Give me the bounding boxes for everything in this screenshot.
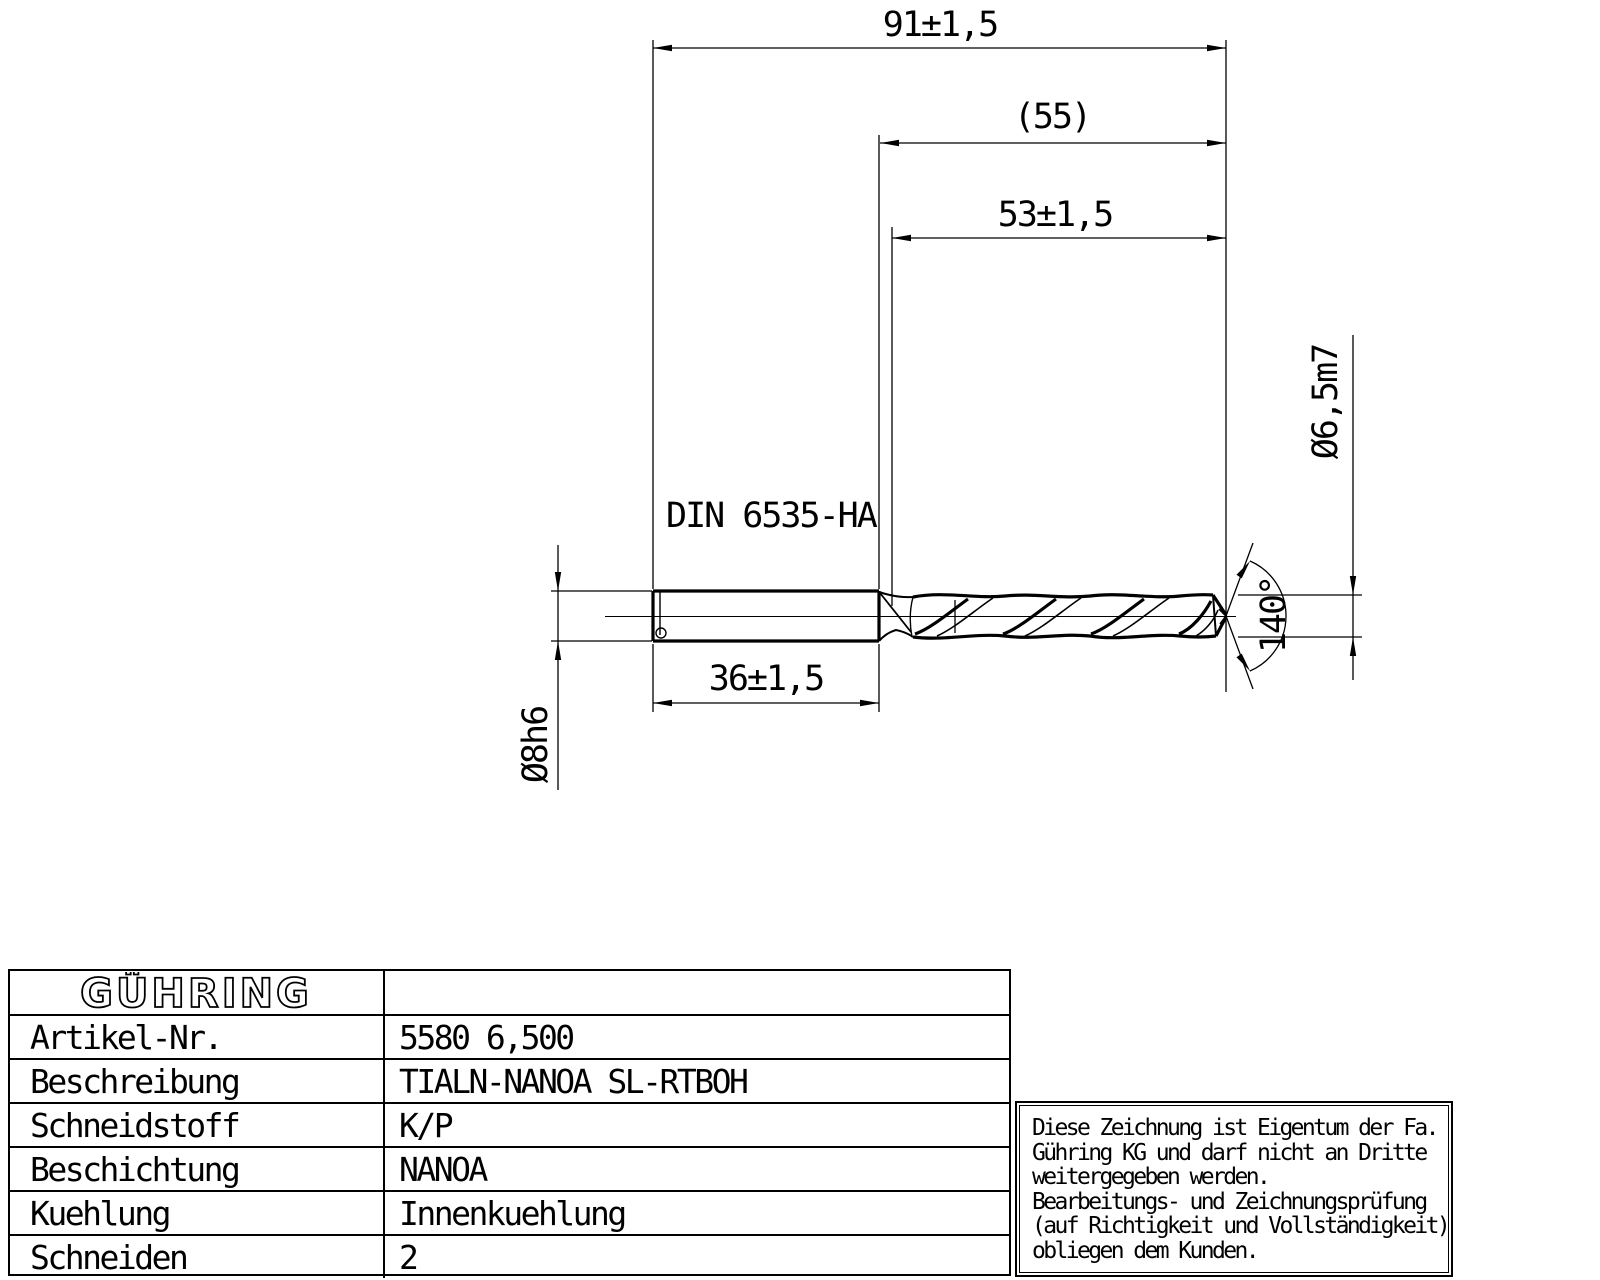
table-row: Schneidstoff K/P xyxy=(10,1102,1009,1146)
notice-line: Diese Zeichnung ist Eigentum der Fa. xyxy=(1032,1116,1448,1141)
table-row: Artikel-Nr. 5580 6,500 xyxy=(10,1014,1009,1058)
dim-flute-length: 53±1,5 xyxy=(998,195,1112,235)
extension-lines xyxy=(551,40,1362,712)
row-label: Beschichtung xyxy=(30,1150,238,1189)
row-label: Artikel-Nr. xyxy=(30,1018,221,1057)
dim-shank-diameter: Ø8h6 xyxy=(516,707,556,783)
notice-line: Bearbeitungs- und Zeichnungsprüfung xyxy=(1032,1190,1448,1215)
brand-logo-cell: GÜHRING xyxy=(10,971,385,1014)
row-value: Innenkuehlung xyxy=(399,1194,625,1233)
dim-point-angle: 140° xyxy=(1254,577,1294,653)
spec-table: GÜHRING Artikel-Nr. 5580 6,500 Beschreib… xyxy=(8,969,1011,1276)
dimension-lines xyxy=(558,48,1353,790)
row-value: 2 xyxy=(399,1238,416,1277)
dim-cutting-diameter: Ø6,5m7 xyxy=(1306,345,1346,459)
row-value: NANOA xyxy=(399,1150,486,1189)
dimension-labels: 91±1,5 (55) 53±1,5 DIN 6535-HA 36±1,5 Ø8… xyxy=(516,5,1346,783)
row-value: 5580 6,500 xyxy=(399,1018,573,1057)
ownership-notice-inner-border: Diese Zeichnung ist Eigentum der Fa. Güh… xyxy=(1019,1105,1449,1273)
row-label: Beschreibung xyxy=(30,1062,238,1101)
dim-ref-length: (55) xyxy=(1014,97,1090,137)
dim-overall-length: 91±1,5 xyxy=(883,5,997,45)
drill-point xyxy=(1213,595,1226,636)
row-label: Schneiden xyxy=(30,1238,186,1277)
table-row: Schneiden 2 xyxy=(10,1234,1009,1278)
dim-shank-length: 36±1,5 xyxy=(709,659,823,699)
ownership-notice-box: Diese Zeichnung ist Eigentum der Fa. Güh… xyxy=(1015,1101,1453,1277)
notice-line: weitergegeben werden. xyxy=(1032,1165,1448,1190)
notice-line: (auf Richtigkeit und Vollständigkeit) xyxy=(1032,1214,1448,1239)
notice-line: Gühring KG und darf nicht an Dritte xyxy=(1032,1141,1448,1166)
brand-logo: GÜHRING xyxy=(11,972,382,1013)
table-row: Beschreibung TIALN-NANOA SL-RTBOH xyxy=(10,1058,1009,1102)
notice-line: obliegen dem Kunden. xyxy=(1032,1239,1448,1264)
row-label: Schneidstoff xyxy=(30,1106,238,1145)
row-value: TIALN-NANOA SL-RTBOH xyxy=(399,1062,746,1101)
table-row: Beschichtung NANOA xyxy=(10,1146,1009,1190)
row-value: K/P xyxy=(399,1106,451,1145)
brand-logo-text: GÜHRING xyxy=(80,972,312,1013)
table-header-row: GÜHRING xyxy=(10,971,1009,1014)
shank-standard-label: DIN 6535-HA xyxy=(666,496,878,536)
table-row: Kuehlung Innenkuehlung xyxy=(10,1190,1009,1234)
table-header-empty-cell xyxy=(385,971,1009,1014)
row-label: Kuehlung xyxy=(30,1194,169,1233)
